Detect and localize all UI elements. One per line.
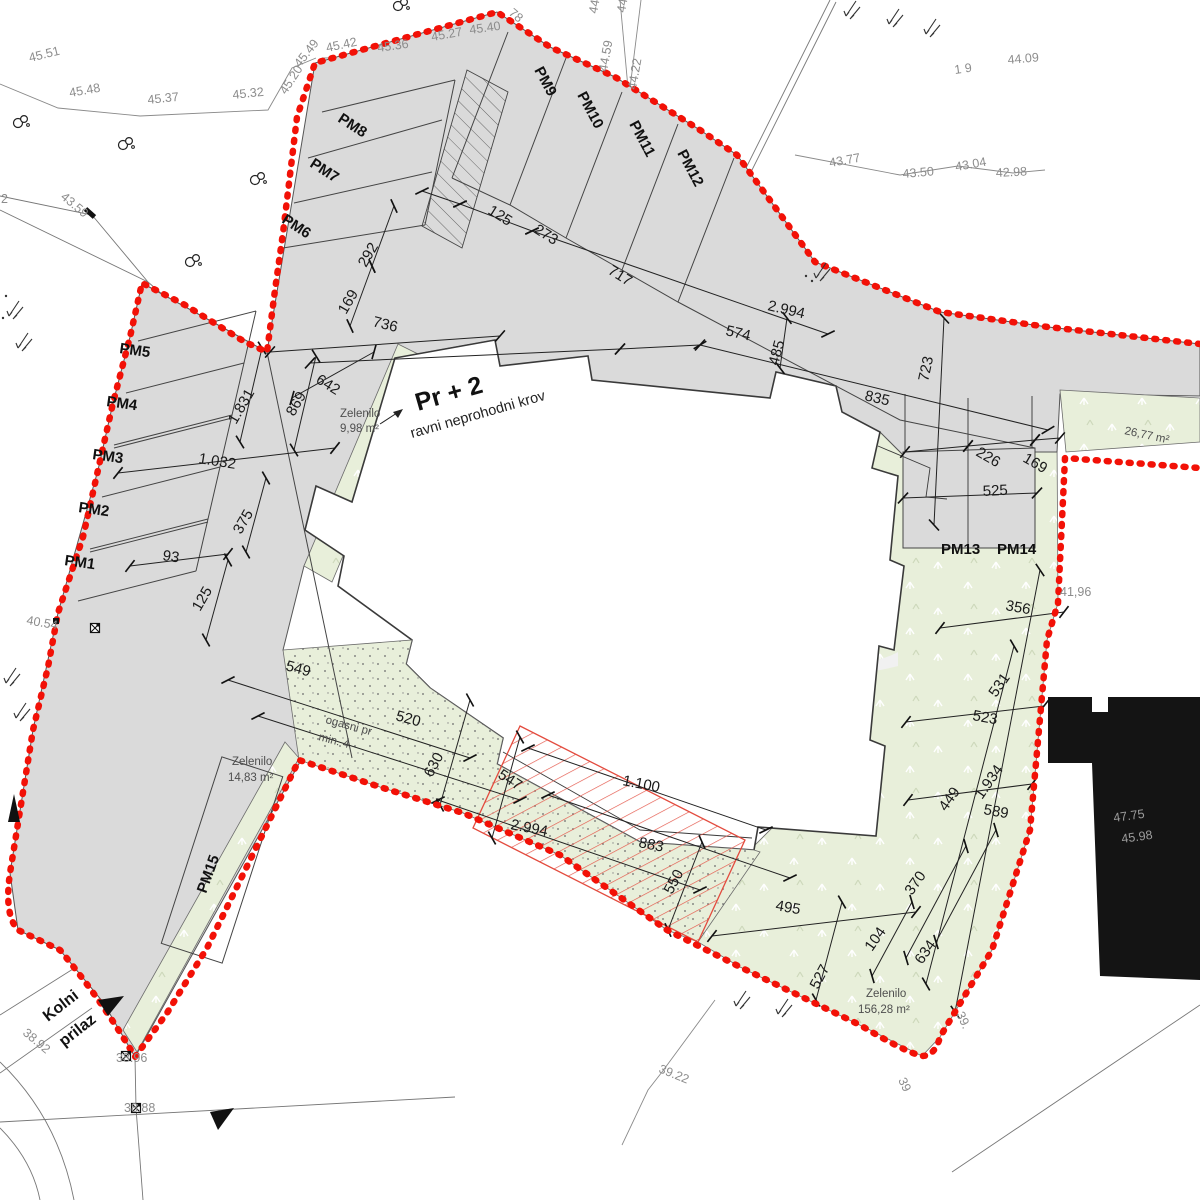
elev-39-22: 39.22 [657, 1062, 691, 1087]
elev-44-22: 44.22 [625, 57, 644, 90]
site-plan: REKER IMMOBILIEN [0, 0, 1200, 1200]
green-label-3: Zelenilo [866, 988, 906, 1000]
elev-40-54: 40.54 [25, 613, 58, 632]
pm14-label: PM14 [997, 541, 1037, 558]
elev-43-04: 43.04 [954, 155, 987, 174]
road-label-prilaz: prilaz [56, 1011, 99, 1050]
pm1-label: PM1 [63, 552, 96, 573]
elev-38-88: 38.88 [124, 1101, 155, 1115]
green-label-2: Zelenilo [232, 756, 272, 768]
green-area-3: 156,28 m² [858, 1004, 910, 1016]
green-area-2: 14,83 m² [228, 772, 274, 784]
elev-45-48: 45.48 [68, 81, 101, 100]
site-plan-svg: REKER IMMOBILIEN [0, 0, 1200, 1200]
elev-43-50: 43.50 [902, 164, 934, 181]
elev-44-59: 44.59 [596, 39, 615, 72]
green-label-1: Zelenilo [340, 408, 380, 420]
elev-2: 2 [1, 192, 8, 206]
dim-93: 93 [161, 547, 180, 566]
elev-42-98: 42.98 [995, 164, 1027, 180]
elev-41-96: 41,96 [1060, 585, 1091, 599]
green-strip-northeast [1060, 390, 1200, 452]
pm5-label: PM5 [118, 340, 151, 361]
elev-43-59: 43.59 [58, 190, 91, 221]
elev-45-37: 45.37 [147, 90, 180, 107]
green-area-1: 9,98 m² [340, 423, 379, 435]
pm2-label: PM2 [77, 499, 110, 520]
elev-45-51: 45.51 [27, 44, 61, 65]
elev-1-9: 1 9 [953, 61, 972, 77]
elev-38-92: 38.92 [20, 1026, 53, 1057]
elev-45-32: 45.32 [232, 85, 265, 102]
dim-525: 525 [982, 482, 1008, 500]
pm13-label: PM13 [941, 541, 980, 558]
elev-44-4: 44.4 [586, 0, 604, 15]
elev-38-96: 38.96 [116, 1051, 147, 1065]
elev-44-3: 44.3 [614, 0, 632, 14]
pm3-label: PM3 [91, 446, 124, 467]
elev-39: 39 [895, 1075, 914, 1094]
elev-44-09: 44.09 [1007, 50, 1039, 67]
